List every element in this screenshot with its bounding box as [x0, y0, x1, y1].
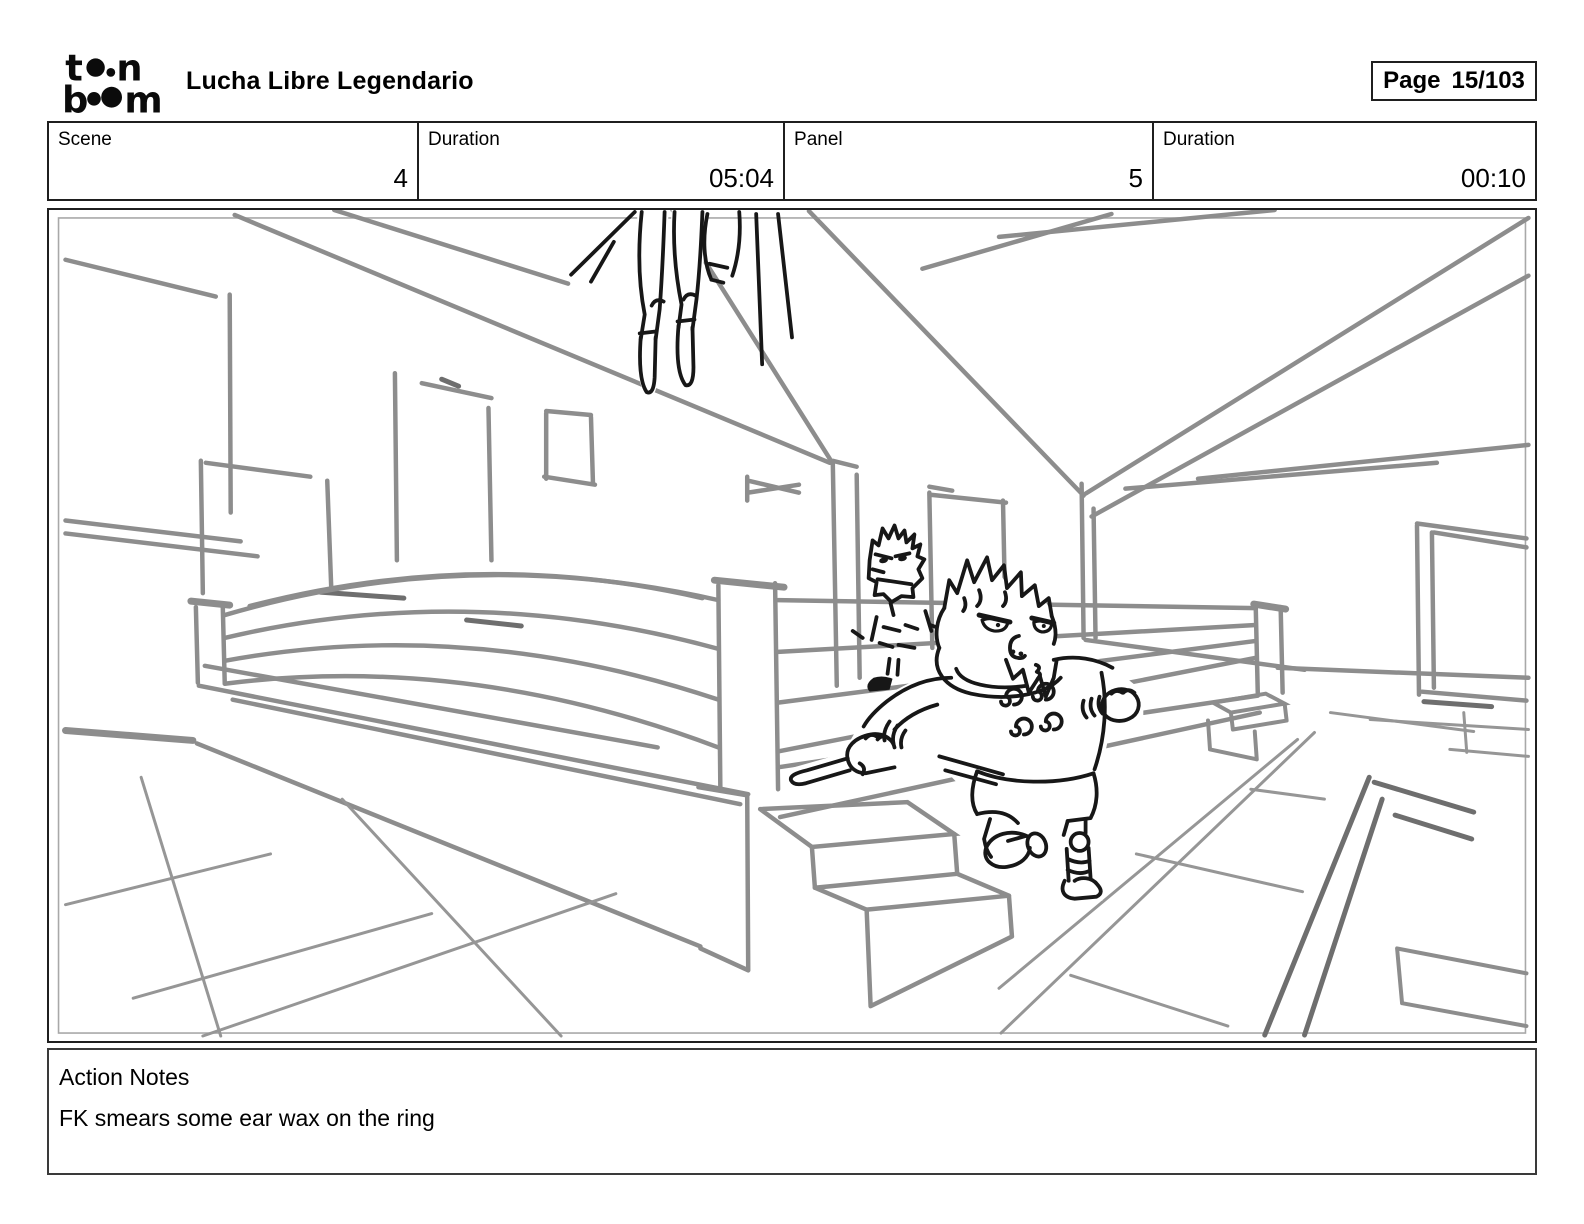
panel-duration-label: Duration — [1163, 129, 1235, 151]
scene-value: 4 — [394, 163, 408, 194]
page-value: 15/103 — [1451, 67, 1524, 95]
page-label: Page — [1383, 67, 1440, 95]
page-indicator: Page 15/103 — [1371, 61, 1537, 101]
toon-boom-logo: t n b m — [55, 50, 173, 114]
action-notes-box: Action Notes FK smears some ear wax on t… — [47, 1048, 1537, 1175]
info-cell-panel-duration: Duration 00:10 — [1154, 123, 1535, 199]
info-cell-panel: Panel 5 — [785, 123, 1154, 199]
panel-info-table: Scene 4 Duration 05:04 Panel 5 Duration … — [47, 121, 1537, 201]
logo-dot-icon — [101, 87, 122, 108]
storyboard-panel — [47, 208, 1537, 1043]
panel-label: Panel — [794, 129, 843, 151]
gym-room-sketch — [65, 210, 1528, 740]
storyboard-sketch — [49, 210, 1535, 1041]
project-title: Lucha Libre Legendario — [186, 67, 474, 96]
logo-dot-icon — [87, 92, 101, 106]
info-cell-scene-duration: Duration 05:04 — [419, 123, 785, 199]
action-notes-text: FK smears some ear wax on the ring — [59, 1105, 1525, 1132]
info-cell-scene: Scene 4 — [49, 123, 419, 199]
spiky-hair-wrestler-sketch — [853, 525, 942, 691]
wrestling-ring-sketch — [191, 574, 1286, 946]
scene-duration-label: Duration — [428, 129, 500, 151]
gym-floor-sketch — [65, 713, 1528, 1036]
scene-label: Scene — [58, 129, 112, 151]
logo-letter-m: m — [124, 78, 162, 114]
panel-duration-value: 00:10 — [1461, 163, 1526, 194]
storyboard-page: { "header": { "logo": { "name": "toon-bo… — [0, 0, 1584, 1224]
logo-dot-icon — [86, 58, 104, 76]
logo-dot-icon — [106, 68, 115, 77]
scene-duration-value: 05:04 — [709, 163, 774, 194]
action-notes-heading: Action Notes — [59, 1064, 1525, 1091]
logo-letter-b: b — [62, 78, 88, 114]
panel-value: 5 — [1129, 163, 1143, 194]
